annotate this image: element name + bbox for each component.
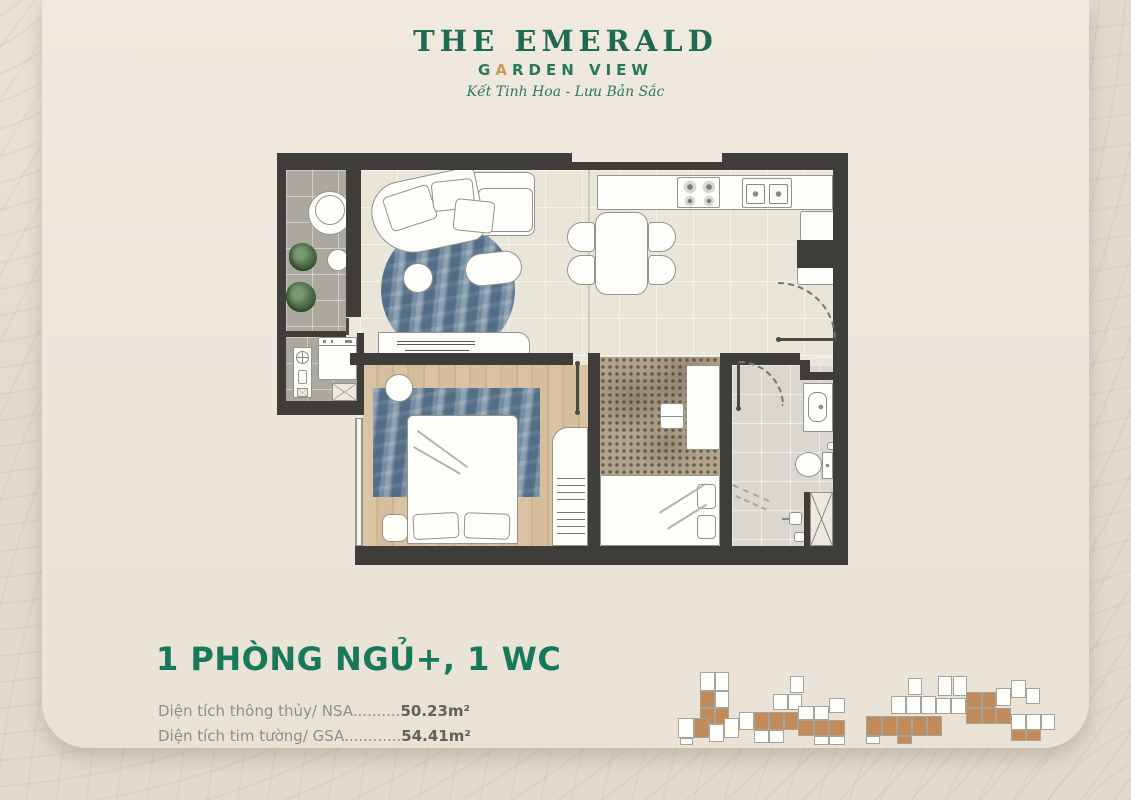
kitchen-sink <box>742 178 792 208</box>
entry-door-hinge <box>776 337 781 342</box>
bathroom-sink <box>803 383 833 432</box>
site-plan-unit <box>678 718 694 738</box>
kitchen-cabinet <box>797 267 835 285</box>
brand-subtitle: GARDEN VIEW <box>0 61 1131 79</box>
fridge <box>800 211 835 241</box>
stove-cooktop <box>677 177 720 208</box>
area-line-gsa: Diện tích tim tường/ GSA............54.4… <box>158 724 471 749</box>
brand-logo: THE EMERALD GARDEN VIEW Kết Tinh Hoa - L… <box>0 24 1131 100</box>
site-plan-unit <box>700 672 715 691</box>
flex-room-side-table <box>660 403 684 429</box>
site-plan-unit <box>1011 714 1026 730</box>
wall-top-left <box>281 153 572 170</box>
site-plan-unit <box>866 736 880 744</box>
site-plan-unit <box>891 696 906 714</box>
dining-table <box>595 212 648 295</box>
site-plan-unit <box>1026 688 1040 704</box>
site-plan-unit <box>814 706 829 720</box>
bedroom-window <box>355 418 363 546</box>
site-plan-unit <box>814 720 829 736</box>
wall-kitchen-niche <box>797 240 845 268</box>
blanket-fold-line <box>413 446 461 475</box>
wall-entry-step-h <box>810 372 841 380</box>
bed-pillow <box>697 515 716 539</box>
site-plan-unit <box>829 698 845 713</box>
site-plan-unit <box>953 676 967 696</box>
wall-bottom <box>355 546 848 565</box>
wall-top-right <box>722 153 848 170</box>
toilet-tank <box>822 452 833 479</box>
site-plan-unit <box>680 738 693 745</box>
site-plan-unit <box>897 716 912 736</box>
area-value: 50.23m² <box>400 702 470 720</box>
site-plan-unit <box>739 712 754 730</box>
wall-balcony-divider <box>346 166 361 317</box>
floor-plan <box>258 148 850 568</box>
balcony-door-leaf <box>346 318 349 335</box>
site-plan-unit <box>773 694 788 710</box>
shower-control-arm <box>782 518 790 520</box>
brand-tagline: Kết Tinh Hoa - Lưu Bản Sắc <box>0 84 1131 100</box>
brand-subtitle-gold-a: A <box>495 61 512 79</box>
bathroom-door-hinge <box>736 406 741 411</box>
site-plan-unit <box>882 716 897 736</box>
brand-title: THE EMERALD <box>0 24 1131 58</box>
wall-flex-bath-divider <box>720 353 732 548</box>
pouf-stool <box>403 263 433 293</box>
site-plan-unit <box>1041 714 1055 730</box>
site-plan-unit <box>790 676 804 693</box>
site-plan-unit <box>936 698 951 714</box>
bedroom-door-leaf <box>576 363 579 413</box>
toilet-bowl <box>795 452 822 477</box>
site-plan-unit <box>829 736 845 745</box>
area-label: Diện tích tim tường/ GSA <box>158 727 344 745</box>
leader-dots: .......... <box>353 702 401 720</box>
bed-bench <box>382 514 408 542</box>
wall-wing-bottom <box>277 401 364 415</box>
sink-basin <box>769 184 788 204</box>
site-plan-unit <box>1026 714 1041 730</box>
site-plan-unit <box>754 712 769 730</box>
area-label: Diện tích thông thủy/ NSA <box>158 702 353 720</box>
site-plan-unit <box>1011 680 1026 698</box>
site-plan-unit <box>715 691 729 708</box>
wardrobe-shelves <box>557 512 585 538</box>
wall-utility-top <box>281 331 346 337</box>
tv-console-groove <box>397 341 475 345</box>
wall-entry-step-v <box>800 360 810 380</box>
site-plan-unit <box>1026 730 1041 741</box>
site-plan-unit <box>814 736 829 745</box>
brand-subtitle-pre: G <box>478 61 495 79</box>
leader-dots: ............ <box>344 727 401 745</box>
plant <box>289 243 317 271</box>
site-plan-unit <box>724 718 739 738</box>
site-plan-unit <box>754 730 769 743</box>
bed-pillow <box>412 512 459 540</box>
site-plan-unit <box>982 692 996 708</box>
site-plan-unit <box>938 676 952 696</box>
bedside-table <box>385 374 413 402</box>
ac-ledge <box>332 383 357 401</box>
sink-basin <box>746 184 765 204</box>
fixture-outline <box>298 370 307 384</box>
site-plan-unit <box>769 712 784 730</box>
site-plan-unit <box>966 708 982 724</box>
site-plan-unit <box>798 720 814 736</box>
single-bed <box>600 475 720 546</box>
bedroom-door-hinge <box>575 410 580 415</box>
shower-control-box <box>789 512 802 525</box>
double-bed <box>407 415 518 544</box>
wall-bath-top <box>722 353 800 365</box>
wall-top-kitchen <box>572 162 722 170</box>
site-plan-unit <box>982 708 996 724</box>
laundry-fixture-panel <box>293 347 312 398</box>
site-plan-unit <box>1011 730 1026 741</box>
site-plan-unit <box>866 716 882 736</box>
site-plan-unit <box>709 724 724 742</box>
site-plan-unit <box>769 730 784 743</box>
unit-title: 1 PHÒNG NGỦ+, 1 WC <box>156 640 561 678</box>
sink-basin <box>808 392 827 422</box>
site-plan-unit <box>912 716 927 736</box>
area-line-nsa: Diện tích thông thủy/ NSA..........50.23… <box>158 699 471 724</box>
vent-fan-icon <box>296 351 309 364</box>
site-plan-unit <box>694 718 709 738</box>
site-plan-unit <box>700 691 715 708</box>
wall-balcony-left <box>277 153 286 401</box>
bed-pillow <box>464 512 511 540</box>
site-plan-unit <box>798 706 814 720</box>
site-plan-unit <box>897 736 912 744</box>
site-plan-unit <box>927 716 942 736</box>
lounge-chair-seat <box>315 195 345 225</box>
flex-room-cabinet <box>686 365 720 450</box>
wardrobe-shelves <box>557 478 585 504</box>
sofa-cushion <box>452 198 495 234</box>
site-plan-unit <box>908 678 922 695</box>
poster-page: THE EMERALD GARDEN VIEW Kết Tinh Hoa - L… <box>0 0 1131 800</box>
site-plan-unit <box>784 712 798 730</box>
site-plan-unit <box>715 672 729 691</box>
wall-utility-right <box>357 333 364 403</box>
site-plan-unit <box>996 688 1011 706</box>
dining-chair <box>567 222 595 252</box>
plant <box>286 282 316 312</box>
shower-tray <box>810 492 833 546</box>
wall-bedroom-top <box>350 353 573 365</box>
site-plan-unit <box>829 720 845 736</box>
washer-control-panel <box>319 338 356 346</box>
wardrobe <box>552 427 588 546</box>
wall-shower-partition <box>804 492 810 546</box>
site-plan-unit <box>921 696 936 714</box>
site-plan-unit <box>906 696 921 714</box>
bedroom-door-hinge <box>575 361 580 366</box>
site-plan-unit <box>996 708 1011 724</box>
site-plan-unit <box>966 692 982 708</box>
wall-bedroom-flex-divider <box>588 353 600 565</box>
area-value: 54.41m² <box>401 727 471 745</box>
drain-box <box>297 388 308 397</box>
wall-right <box>833 153 848 565</box>
site-plan-unit <box>951 698 966 714</box>
brand-subtitle-post: RDEN VIEW <box>512 61 653 79</box>
unit-areas: Diện tích thông thủy/ NSA..........50.23… <box>158 699 471 749</box>
dining-chair <box>567 255 595 285</box>
